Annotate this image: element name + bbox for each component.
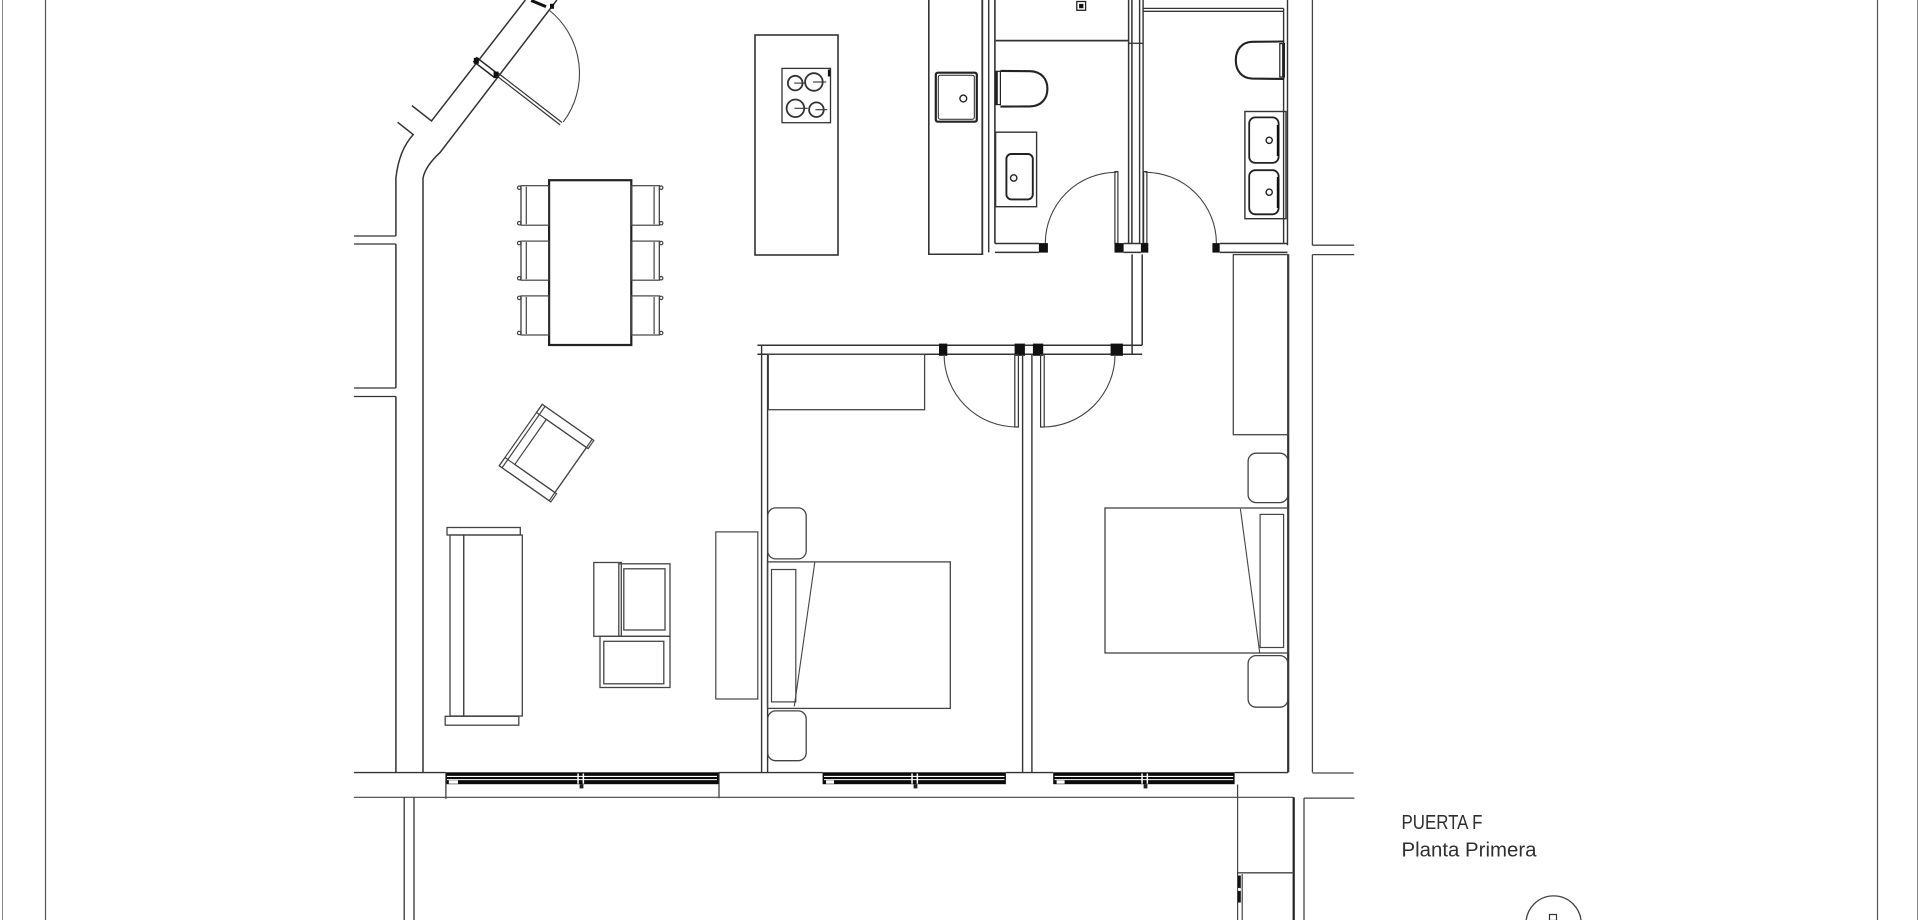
svg-text:PUERTA F: PUERTA F (1402, 812, 1483, 834)
svg-text:Planta Primera: Planta Primera (1402, 840, 1538, 862)
